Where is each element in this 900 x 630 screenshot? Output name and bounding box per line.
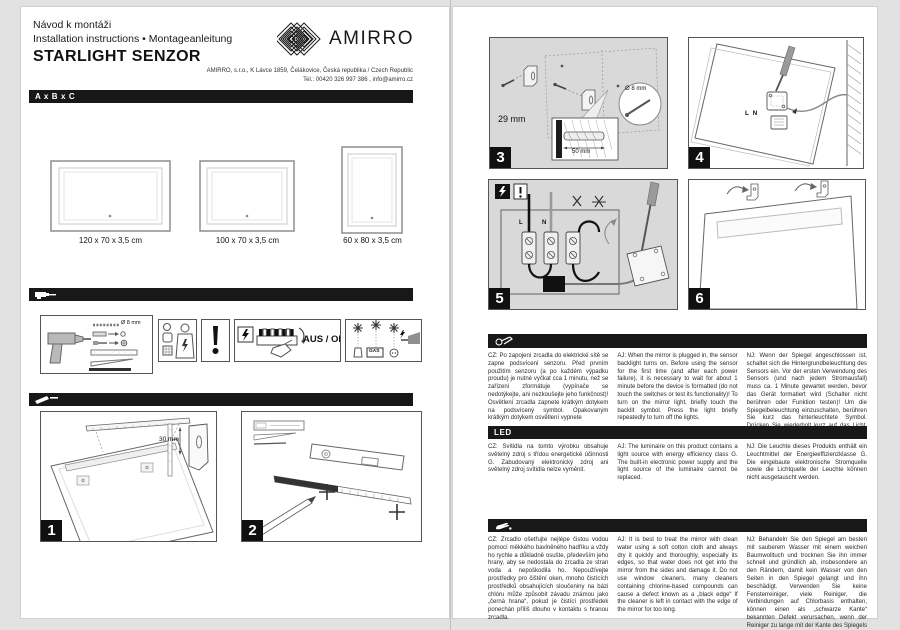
header-line1: Návod k montáži (33, 19, 111, 32)
step3-box: 29 mm 50 mm Ø 8 mm 3 (489, 37, 668, 169)
step5-box: L N 5 (488, 179, 678, 310)
step5-diagram (489, 180, 677, 309)
page-title: STARLIGHT SENZOR (33, 48, 201, 66)
size-label-3: 60 x 80 x 3,5 cm (312, 236, 433, 245)
step5-live-label: L (519, 220, 523, 226)
ignition-hazard-pictogram: GAS (345, 319, 422, 362)
step1-diagram (41, 412, 216, 541)
dimensions-bar-label: A x B x C (35, 93, 75, 101)
step5-neutral-label: N (542, 220, 546, 226)
pencil-icon (35, 395, 59, 404)
tools-bar (29, 288, 413, 301)
led-section-bar: LED (488, 426, 867, 439)
marking-bar (29, 393, 413, 406)
drill-bit-size-label: Ø 8 mm (121, 320, 141, 326)
warning-pictogram (201, 319, 230, 362)
address-line1: AMIRRO, s.r.o., K Lávce 1859, Čelákovice… (163, 67, 413, 76)
step4-number: 4 (689, 147, 710, 168)
step6-number: 6 (689, 288, 710, 309)
led-bar-label: LED (494, 429, 512, 437)
hand-care-icon (494, 521, 512, 531)
drill-icon (35, 290, 57, 299)
aus-off-label: AUS / OFF (303, 334, 341, 345)
led-text-nj: NJ: Die Leuchte dieses Produkts enthält … (747, 444, 867, 483)
header-line2: Installation instructions • Montageanlei… (33, 33, 232, 46)
dimensions-bar: A x B x C (29, 90, 413, 103)
step6-box: 6 (688, 179, 866, 310)
step1-box: 30 mm 1 (40, 411, 217, 542)
drill-tools-pictogram: Ø 8 mm (40, 315, 153, 374)
sensor-section-bar (488, 334, 867, 348)
brand-name: AMIRRO (329, 28, 414, 50)
step2-diagram (242, 412, 421, 541)
step2-box: 2 (241, 411, 422, 542)
led-text-cz: CZ: Svítidla na tomto výrobku obsahuje s… (488, 444, 608, 483)
mirror-60x80-diagram (341, 146, 403, 234)
company-address: AMIRRO, s.r.o., K Lávce 1859, Čelákovice… (163, 67, 413, 85)
touch-icon (494, 336, 514, 346)
step3-depth-label: 50 mm (572, 149, 590, 155)
step6-diagram (689, 180, 865, 309)
size-label-1: 120 x 70 x 3,5 cm (50, 236, 171, 245)
led-text-aj: AJ: The luminaire on this product contai… (617, 444, 737, 483)
power-off-pictogram: AUS / OFF (234, 319, 341, 362)
step4-box: L N 4 (688, 37, 864, 169)
address-line2: Tel.: 00420 326 997 386 , info@amirro.cz (163, 76, 413, 85)
mirror-100x70-diagram (199, 160, 295, 232)
step4-terminals-label: L N (745, 110, 758, 117)
care-text-nj: NJ: Behandeln Sie den Spiegel am besten … (747, 537, 867, 630)
mirror-120x70-diagram (50, 160, 171, 232)
step2-number: 2 (242, 520, 263, 541)
care-text-row: CZ: Zrcadlo ošetřujte nejlépe čistou vod… (488, 537, 867, 630)
installation-manual-scan: Návod k montáži Installation instruction… (0, 0, 900, 630)
step4-diagram (689, 38, 863, 168)
page-left: Návod k montáži Installation instruction… (20, 6, 450, 619)
warning-exclamation-icon (202, 320, 229, 361)
care-text-aj: AJ: It is best to treat the mirror with … (617, 537, 737, 630)
protective-gear-pictogram (158, 319, 197, 362)
care-text-cz: CZ: Zrcadlo ošetřujte nejlépe čistou vod… (488, 537, 608, 630)
step3-number: 3 (490, 147, 511, 168)
step1-number: 1 (41, 520, 62, 541)
step5-number: 5 (489, 288, 510, 309)
ignition-hazard-icon (346, 320, 421, 361)
step3-spacing-label: 29 mm (498, 114, 526, 124)
gas-label: GAS (369, 349, 379, 354)
amirro-logo-icon (277, 19, 325, 59)
page-right: 29 mm 50 mm Ø 8 mm 3 L N (452, 6, 878, 619)
care-section-bar (488, 519, 867, 532)
step3-diameter-label: Ø 8 mm (625, 86, 646, 92)
protective-gear-icon (159, 320, 196, 361)
step1-dimension-label: 30 mm (159, 436, 179, 443)
size-label-2: 100 x 70 x 3,5 cm (187, 236, 308, 245)
page-divider (450, 0, 451, 630)
led-text-row: CZ: Svítidla na tomto výrobku obsahuje s… (488, 444, 867, 483)
